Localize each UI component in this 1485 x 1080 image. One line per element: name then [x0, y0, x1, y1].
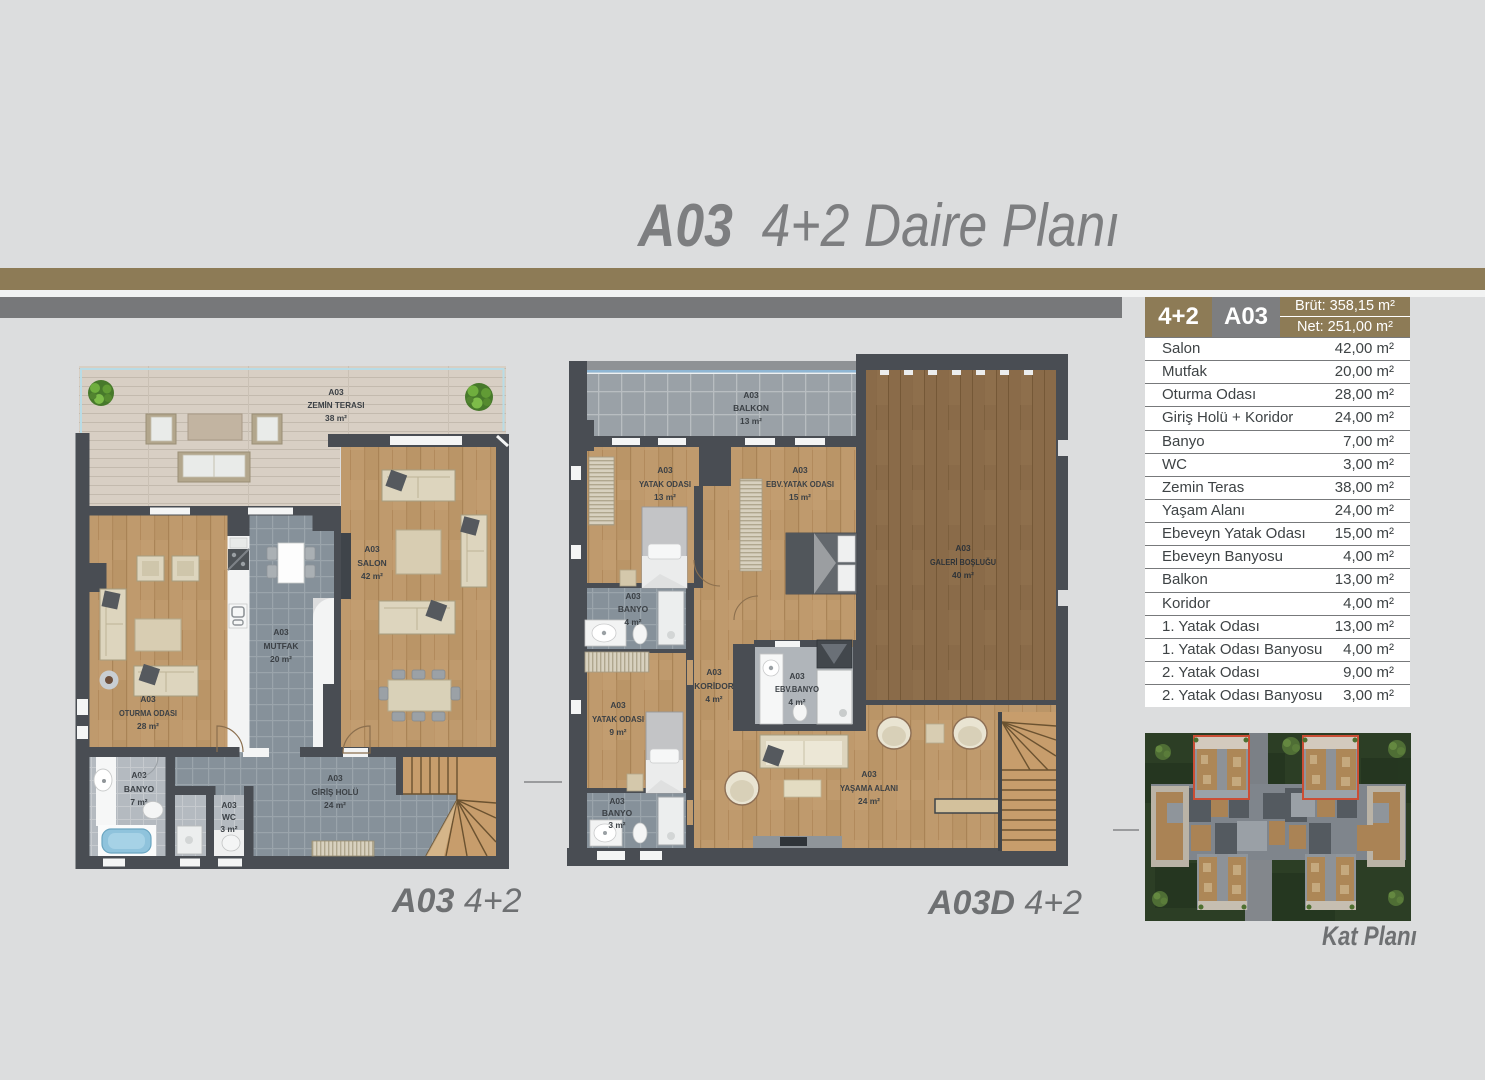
svg-text:A03: A03 — [657, 465, 673, 475]
svg-text:13 m²: 13 m² — [740, 416, 762, 426]
svg-text:13 m²: 13 m² — [654, 492, 676, 502]
svg-text:4 m²: 4 m² — [624, 617, 641, 627]
svg-text:3 m²: 3 m² — [608, 820, 625, 830]
svg-text:A03: A03 — [792, 465, 808, 475]
svg-text:BANYO: BANYO — [618, 604, 649, 614]
svg-text:A03: A03 — [743, 390, 759, 400]
svg-text:A03: A03 — [273, 627, 289, 637]
svg-text:A03: A03 — [610, 700, 626, 710]
svg-text:WC: WC — [222, 812, 236, 822]
svg-text:9 m²: 9 m² — [609, 727, 626, 737]
svg-text:GİRİŞ HOLÜ: GİRİŞ HOLÜ — [312, 787, 359, 797]
svg-text:A03: A03 — [221, 800, 237, 810]
svg-text:ZEMİN TERASI: ZEMİN TERASI — [308, 400, 365, 410]
svg-text:BALKON: BALKON — [733, 403, 769, 413]
svg-text:EBV.BANYO: EBV.BANYO — [775, 684, 819, 694]
svg-text:A03: A03 — [131, 770, 147, 780]
svg-text:28 m²: 28 m² — [137, 721, 159, 731]
svg-text:YATAK ODASI: YATAK ODASI — [592, 714, 644, 724]
svg-text:YAŞAMA ALANI: YAŞAMA ALANI — [840, 783, 898, 793]
svg-text:40 m²: 40 m² — [952, 570, 974, 580]
svg-text:A03: A03 — [861, 769, 877, 779]
svg-text:BANYO: BANYO — [602, 808, 633, 818]
svg-text:A03: A03 — [609, 796, 625, 806]
svg-text:EBV.YATAK ODASI: EBV.YATAK ODASI — [766, 479, 834, 489]
svg-text:A03: A03 — [364, 544, 380, 554]
svg-text:A03: A03 — [955, 543, 971, 553]
svg-text:A03: A03 — [625, 591, 641, 601]
svg-text:A03: A03 — [789, 671, 805, 681]
svg-text:SALON: SALON — [357, 558, 386, 568]
svg-text:7 m²: 7 m² — [130, 797, 147, 807]
svg-text:MUTFAK: MUTFAK — [264, 641, 299, 651]
svg-text:20 m²: 20 m² — [270, 654, 292, 664]
svg-text:38 m²: 38 m² — [325, 413, 347, 423]
svg-text:A03: A03 — [328, 387, 344, 397]
svg-text:4 m²: 4 m² — [705, 694, 722, 704]
svg-text:15 m²: 15 m² — [789, 492, 811, 502]
svg-text:3 m²: 3 m² — [220, 824, 237, 834]
svg-text:A03: A03 — [706, 667, 722, 677]
svg-text:YATAK ODASI: YATAK ODASI — [639, 479, 691, 489]
svg-text:A03: A03 — [140, 694, 156, 704]
svg-text:OTURMA ODASI: OTURMA ODASI — [119, 708, 177, 718]
svg-text:BANYO: BANYO — [124, 784, 155, 794]
svg-text:24 m²: 24 m² — [858, 796, 880, 806]
svg-text:A03: A03 — [327, 773, 343, 783]
svg-text:KORİDOR: KORİDOR — [694, 681, 734, 691]
svg-text:4 m²: 4 m² — [788, 697, 805, 707]
svg-text:24 m²: 24 m² — [324, 800, 346, 810]
svg-text:GALERİ BOŞLUĞU: GALERİ BOŞLUĞU — [930, 556, 996, 567]
svg-text:42 m²: 42 m² — [361, 571, 383, 581]
